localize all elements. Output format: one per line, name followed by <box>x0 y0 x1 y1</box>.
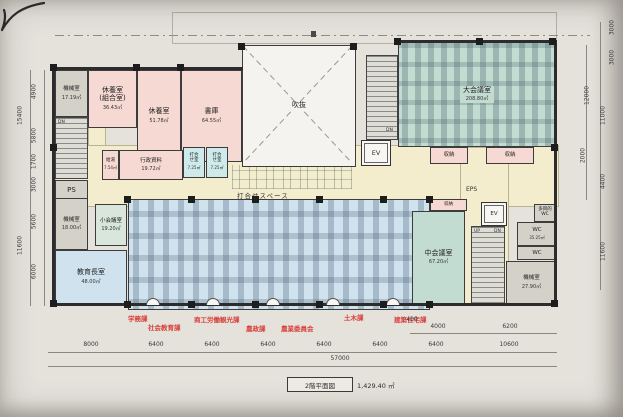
dim-line-bottom <box>48 352 557 353</box>
meeting-space-label: 打合せスペース <box>237 190 289 200</box>
room-label: 大会議室 <box>463 87 491 95</box>
wall-right <box>554 40 557 306</box>
room-label: 教育長室 <box>77 269 105 277</box>
dept-nosei: 農政課 <box>246 323 266 333</box>
wc-1: WC 35.25㎡ <box>517 222 557 246</box>
room-area: 18.00㎡ <box>62 224 81 231</box>
small-conference-room: 小会議室 19.20㎡ <box>95 204 127 246</box>
room-label: 休養室 (組合室) <box>99 87 125 102</box>
column-marker <box>177 64 184 71</box>
atrium-void: 吹抜 <box>242 45 356 167</box>
eps-label: EPS <box>466 186 477 193</box>
room-label: 機械室 <box>63 86 80 92</box>
room-area: 7.25㎡ <box>211 165 224 171</box>
dim-right-11600: 11600 <box>600 232 607 272</box>
rest-room-union: 休養室 (組合室) 36.43㎡ <box>88 70 137 128</box>
room-area: 64.55㎡ <box>202 117 221 124</box>
column-marker <box>188 301 195 308</box>
dim-bottom-6400b: 6400 <box>192 341 232 348</box>
dim-line-bottom-sub <box>410 333 557 334</box>
dim-bottom-6400d: 6400 <box>304 341 344 348</box>
stair-bottom-right <box>471 226 505 304</box>
column-marker <box>124 196 131 203</box>
column-marker <box>476 38 483 45</box>
column-marker <box>50 64 57 71</box>
door-arc <box>266 298 280 305</box>
atrium-label: 吹抜 <box>290 102 308 110</box>
room-area: 27.90㎡ <box>522 283 541 290</box>
elevator-center-label: EV <box>371 149 382 157</box>
room-label: 行政資料 <box>140 158 162 164</box>
door-arc <box>326 298 340 305</box>
room-label: 機械室 <box>523 275 540 281</box>
stair-br-dn-label: DN <box>494 229 501 234</box>
room-label: 収納 <box>444 203 453 208</box>
drawing-title-box: 2階平面図 <box>287 377 353 392</box>
elevator-right: EV <box>481 202 507 226</box>
column-marker <box>50 144 57 151</box>
dim-bottom-sub-400: 400 <box>392 316 432 323</box>
dept-shoko-rodo-kanko: 商工労働観光課 <box>194 314 240 324</box>
dim-bottom-6400f: 6400 <box>416 341 456 348</box>
column-marker <box>426 301 433 308</box>
column-marker <box>124 301 131 308</box>
dept-shakai-kyoiku: 社会教育課 <box>148 322 181 332</box>
stair-left-dn-label: DN <box>58 120 65 125</box>
column-marker <box>238 43 245 50</box>
storage-2: 収納 <box>486 147 534 164</box>
elevator-center: EV <box>361 140 391 166</box>
room-area: 208.80㎡ <box>466 95 489 102</box>
room-label: 収納 <box>443 152 454 158</box>
room-label: 書庫 <box>205 108 219 116</box>
floor-plan-photo: 打合せスペース 吹抜 DN DN UP DN EV EV PS EPS 機械室 … <box>0 0 623 417</box>
meeting-room-a: 打合 せ室 7.25㎡ <box>183 147 205 178</box>
large-conference-room: 大会議室 208.80㎡ <box>398 42 556 147</box>
dim-line-left-inner <box>44 70 45 306</box>
pipe-shaft-label: PS <box>67 187 76 195</box>
room-area: 51.78㎡ <box>149 117 168 124</box>
wall-top-left <box>52 67 243 70</box>
dim-line-bottom-total <box>48 366 557 367</box>
dim-bottom-6400a: 6400 <box>136 341 176 348</box>
dim-right-12000: 12000 <box>584 76 591 116</box>
dim-left-15400: 15400 <box>17 96 24 136</box>
column-marker <box>380 196 387 203</box>
column-marker <box>551 300 558 307</box>
elevator-right-label: EV <box>489 211 498 217</box>
pen-mark <box>0 0 50 34</box>
room-label: 機械室 <box>63 217 80 223</box>
admin-documents-room: 行政資料 19.72㎡ <box>119 150 183 180</box>
dim-left-11600: 11600 <box>17 226 24 266</box>
column-marker <box>316 301 323 308</box>
room-area: 7.25㎡ <box>188 165 201 171</box>
column-marker <box>133 64 140 71</box>
door-arc <box>146 298 160 305</box>
room-area: 7.54㎡ <box>104 165 117 171</box>
room-label: 小会議室 <box>100 218 122 224</box>
room-label: 打合 せ室 <box>213 154 222 164</box>
centerline <box>55 35 590 36</box>
mechanical-room-3: 機械室 27.90㎡ <box>506 261 557 304</box>
dim-bottom-sub-4000: 4000 <box>418 323 458 330</box>
rest-room: 休養室 51.78㎡ <box>137 70 181 162</box>
meeting-space-tables <box>232 165 352 189</box>
storage-3: 収納 <box>430 199 467 211</box>
dim-left-6000: 6000 <box>31 252 38 292</box>
drawing-title: 2階平面図 <box>305 380 335 390</box>
dept-nogyo-iinkai: 農業委員会 <box>281 323 314 333</box>
room-label: 収納 <box>504 152 515 158</box>
room-area: 19.20㎡ <box>101 225 120 232</box>
dept-doboku: 土木課 <box>344 312 364 322</box>
wc-2: WC <box>517 246 557 260</box>
hot-water-room: 給湯 7.54㎡ <box>102 150 119 180</box>
open-office-area <box>128 199 430 310</box>
stair-top-dn-label: DN <box>386 128 393 133</box>
column-marker <box>188 196 195 203</box>
dim-left-5600: 5600 <box>31 202 38 242</box>
dim-bottom-6400c: 6400 <box>248 341 288 348</box>
dim-bottom-sub-6200: 6200 <box>490 323 530 330</box>
dim-right-4400: 4400 <box>600 162 607 202</box>
column-marker <box>252 301 259 308</box>
stair-left <box>55 117 88 179</box>
room-label: WC <box>532 250 541 256</box>
column-marker <box>426 196 433 203</box>
room-area: 48.00㎡ <box>81 278 100 285</box>
centerline-marker <box>311 31 316 37</box>
dim-line-right-inner <box>586 45 587 200</box>
meeting-room-b: 打合 せ室 7.25㎡ <box>206 147 228 178</box>
door-arc <box>206 298 220 305</box>
room-label: 多目的 WC <box>538 208 552 218</box>
total-floor-area: 1,429.40 ㎡ <box>357 380 395 390</box>
column-marker <box>350 43 357 50</box>
stair-br-up-label: UP <box>474 229 480 234</box>
dim-bottom-6400e: 6400 <box>360 341 400 348</box>
wall-left <box>52 67 55 306</box>
dim-bottom-8000: 8000 <box>71 341 111 348</box>
dept-gakumu: 学務課 <box>128 313 148 323</box>
dim-right-11000: 11000 <box>600 96 607 136</box>
dim-right-2000: 2000 <box>580 136 587 176</box>
superintendent-room: 教育長室 48.00㎡ <box>55 250 127 304</box>
room-label: 打合 せ室 <box>190 154 199 164</box>
dim-bottom-total-57000: 57000 <box>310 355 370 362</box>
column-marker <box>316 196 323 203</box>
room-label: 給湯 <box>106 159 115 164</box>
room-area: 36.43㎡ <box>103 104 122 111</box>
room-area: 17.19㎡ <box>62 94 81 101</box>
room-label: WC <box>532 227 541 233</box>
mechanical-room-2: 機械室 18.00㎡ <box>55 198 88 250</box>
dim-right-3000b: 3000 <box>609 38 616 78</box>
dim-left-4900: 4900 <box>31 72 38 112</box>
multipurpose-wc: 多目的 WC <box>534 204 556 222</box>
column-marker <box>50 300 57 307</box>
room-label: 休養室 <box>149 108 170 116</box>
stair-top <box>366 55 398 140</box>
dim-left-3000: 3000 <box>31 165 38 205</box>
storage-1: 収納 <box>430 147 468 164</box>
medium-conference-room: 中会議室 67.20㎡ <box>412 211 465 304</box>
mechanical-room-1: 機械室 17.19㎡ <box>55 70 88 117</box>
room-area: 67.20㎡ <box>429 258 448 265</box>
room-area: 19.72㎡ <box>141 165 160 172</box>
dim-bottom-10600: 10600 <box>489 341 529 348</box>
column-marker <box>394 38 401 45</box>
room-label: 中会議室 <box>425 250 453 258</box>
door-arc <box>386 298 400 305</box>
column-marker <box>549 38 556 45</box>
column-marker <box>380 301 387 308</box>
room-area: 35.25㎡ <box>529 235 544 241</box>
column-marker <box>551 144 558 151</box>
